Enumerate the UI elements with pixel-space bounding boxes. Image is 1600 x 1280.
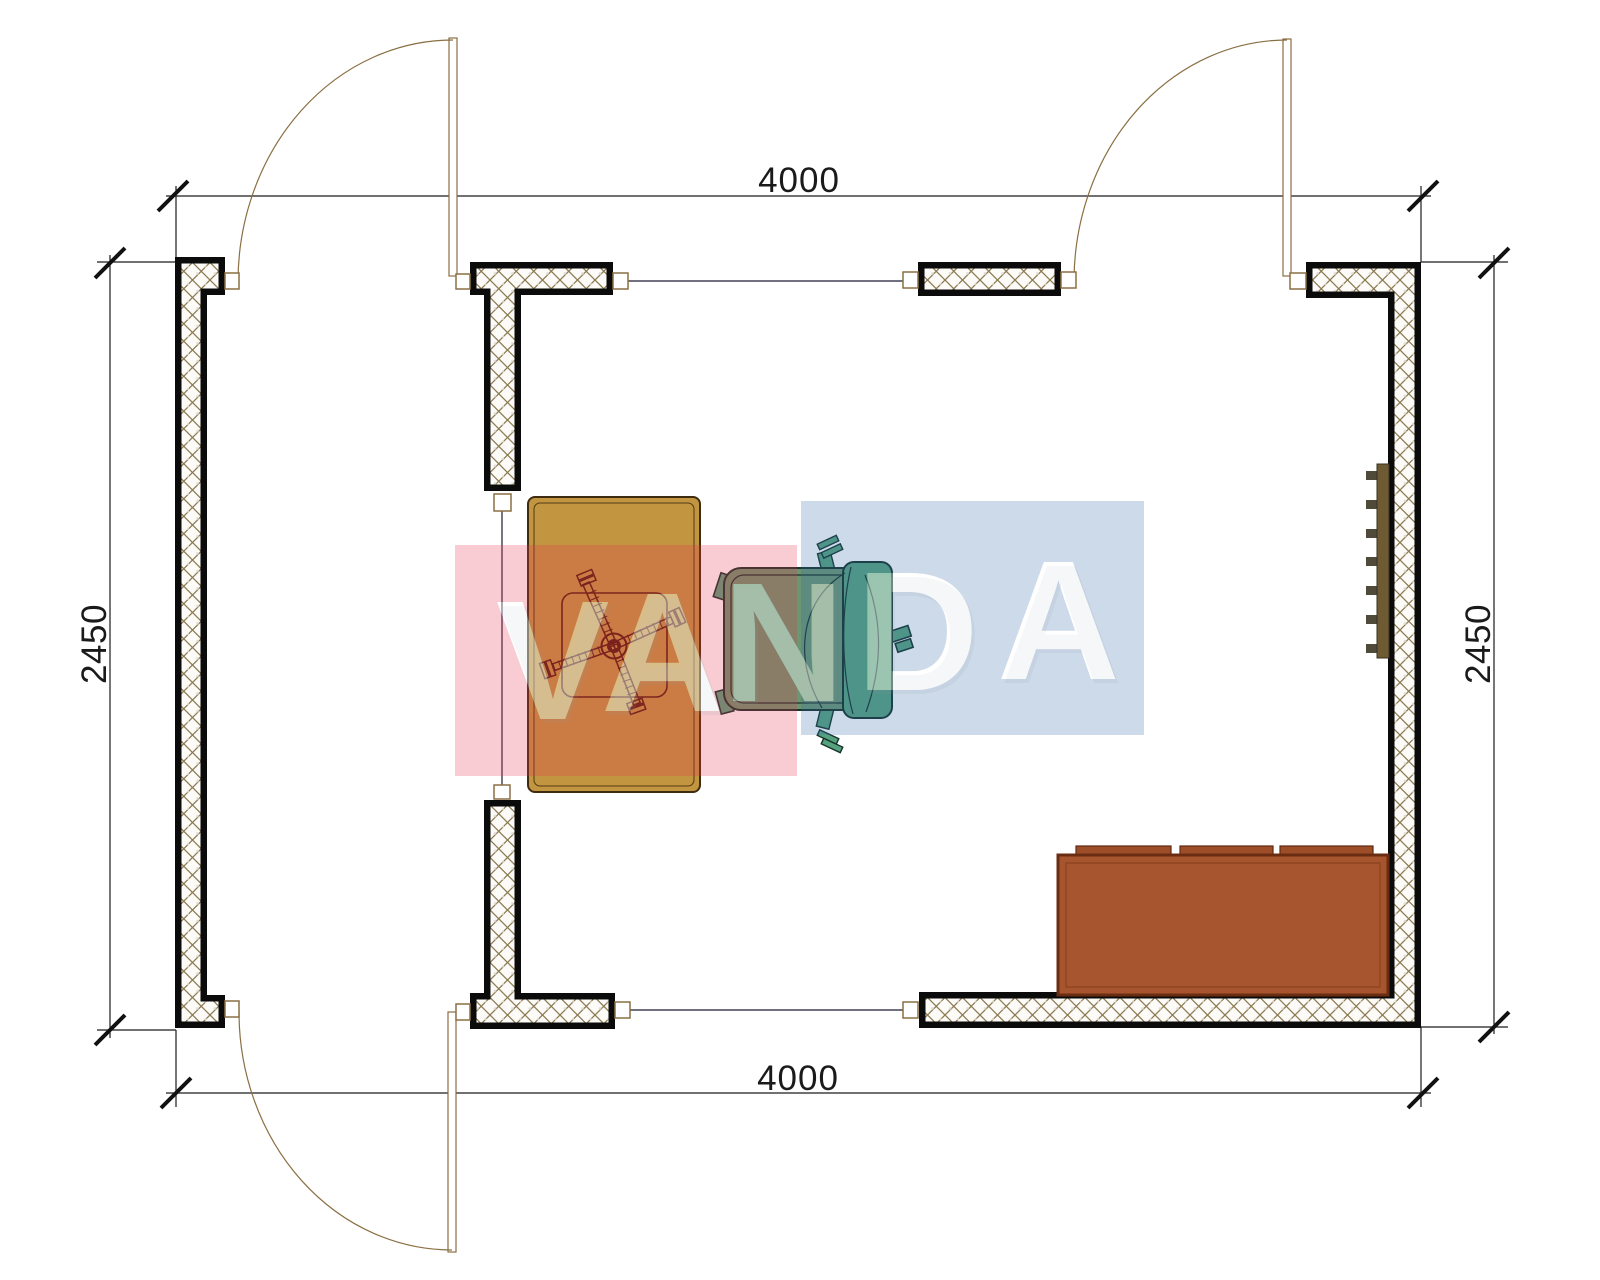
svg-text:D: D [856, 537, 979, 727]
svg-text:A: A [997, 526, 1120, 716]
svg-text:4000: 4000 [758, 161, 840, 200]
svg-text:A: A [601, 558, 724, 748]
svg-text:4000: 4000 [757, 1059, 839, 1098]
svg-text:N: N [722, 548, 845, 738]
svg-text:2450: 2450 [1459, 604, 1498, 684]
svg-text:V: V [496, 566, 609, 756]
svg-text:2450: 2450 [75, 604, 114, 684]
